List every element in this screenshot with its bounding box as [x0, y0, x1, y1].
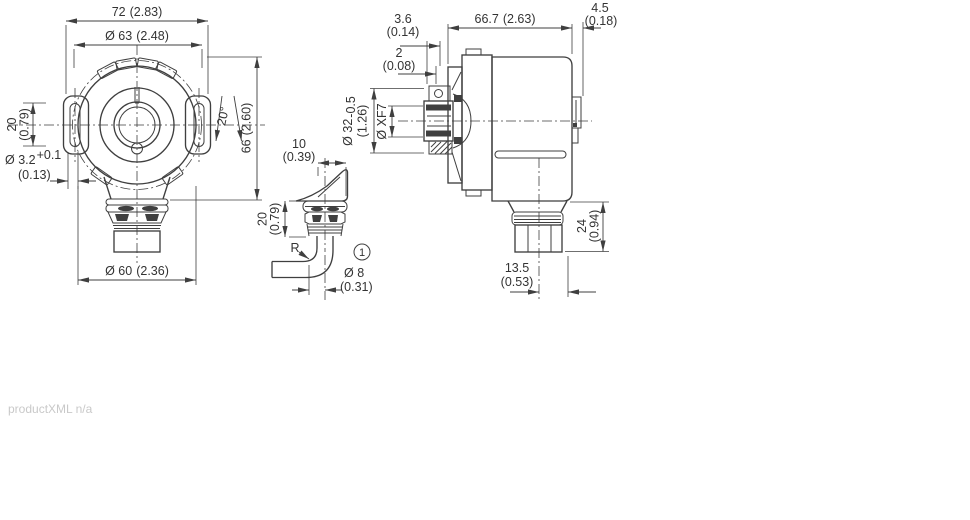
dim-cable-diameter: Ø 8 (0.31)	[292, 265, 373, 295]
housing-screw-top	[466, 49, 481, 55]
dim-slot-angle: 20°	[214, 96, 241, 141]
dim-hub-gap-in: (0.08)	[383, 59, 416, 73]
dim-hub-diameter-in: (1.26)	[356, 105, 370, 138]
dim-body-diameter-label: Ø 60(2.36)	[105, 264, 169, 278]
dim-hub-gap: 2 (0.08)	[383, 46, 436, 84]
dim-width-label: 72(2.83)	[112, 5, 163, 19]
dim-gland-height: 24 (0.94)	[565, 202, 609, 252]
footer-note: productXML n/a	[8, 402, 93, 416]
front-housing	[462, 55, 492, 190]
encoder-body	[492, 57, 572, 201]
housing-screw-bottom	[466, 190, 481, 196]
bend-radius-label: R	[290, 241, 299, 255]
dim-gland-offset: 13.5 (0.53)	[501, 256, 596, 297]
body-groove	[495, 151, 566, 158]
dim-rear-clearance: 4.5 (0.18)	[583, 1, 617, 96]
dim-rear-clearance-in: (0.18)	[585, 14, 618, 28]
cable-detail: 10 (0.39) 20 (0.79) R 1 Ø 8 (0.31)	[256, 137, 373, 300]
bend-radius: R	[290, 241, 309, 259]
dim-exit-offset-in: (0.39)	[283, 150, 316, 164]
bent-cable	[272, 236, 333, 278]
technical-drawing: 72(2.83) Ø 63(2.48) 20 (0.79) Ø 3.2+0.1 …	[0, 0, 970, 520]
dim-gland-length-in: (0.79)	[268, 203, 282, 236]
callout-1: 1	[354, 244, 370, 260]
dim-body-length: 66.7(2.63)	[448, 12, 572, 64]
dim-gland-offset-mm: 13.5	[505, 261, 529, 275]
dim-slot-angle-label: 20°	[214, 105, 232, 126]
dim-exit-offset-mm: 10	[292, 137, 306, 151]
dim-body-length-label: 66.7(2.63)	[475, 12, 536, 26]
dim-rear-clearance-mm: 4.5	[591, 1, 608, 15]
dim-flange-offset-mm: 3.6	[394, 12, 411, 26]
rear-connector	[572, 97, 581, 143]
dim-slot-width-in: (0.13)	[18, 168, 51, 182]
dim-gland-offset-in: (0.53)	[501, 275, 534, 289]
front-view: 72(2.83) Ø 63(2.48) 20 (0.79) Ø 3.2+0.1 …	[5, 5, 265, 285]
dim-slot-width-mm: Ø 3.2+0.1	[5, 148, 61, 167]
side-cable-gland	[508, 201, 567, 252]
dim-cable-diameter-mm: Ø 8	[344, 266, 364, 280]
dim-exit-offset: 10 (0.39)	[283, 137, 346, 196]
drawing-canvas: 72(2.83) Ø 63(2.48) 20 (0.79) Ø 3.2+0.1 …	[0, 0, 970, 520]
dim-height: 66(2.60)	[170, 57, 262, 200]
dim-hub-gap-mm: 2	[396, 46, 403, 60]
side-view: 3.6 (0.14) 2 (0.08) 66.7(2.63) 4.5 (0.18…	[341, 1, 617, 300]
dim-shaft-bore-label: Ø XF7	[375, 103, 389, 139]
dim-slot-length-in: (0.79)	[18, 108, 32, 141]
cable-entry-flag	[296, 170, 348, 201]
dim-body-diameter: Ø 60(2.36)	[78, 186, 196, 285]
torque-arm-tab	[429, 86, 450, 101]
dim-flange-offset-in: (0.14)	[387, 25, 420, 39]
dim-height-label: 66(2.60)	[240, 103, 254, 154]
dim-gland-length: 20 (0.79)	[256, 201, 307, 237]
dim-bolt-circle-label: Ø 63(2.48)	[105, 29, 169, 43]
torque-arm-hole	[435, 90, 443, 98]
callout-number: 1	[359, 247, 365, 259]
dim-slot-length: 20 (0.79)	[5, 103, 46, 146]
dim-shaft-bore: Ø XF7	[375, 103, 423, 139]
dim-cable-diameter-in: (0.31)	[340, 280, 373, 294]
dim-gland-height-in: (0.94)	[588, 210, 602, 243]
